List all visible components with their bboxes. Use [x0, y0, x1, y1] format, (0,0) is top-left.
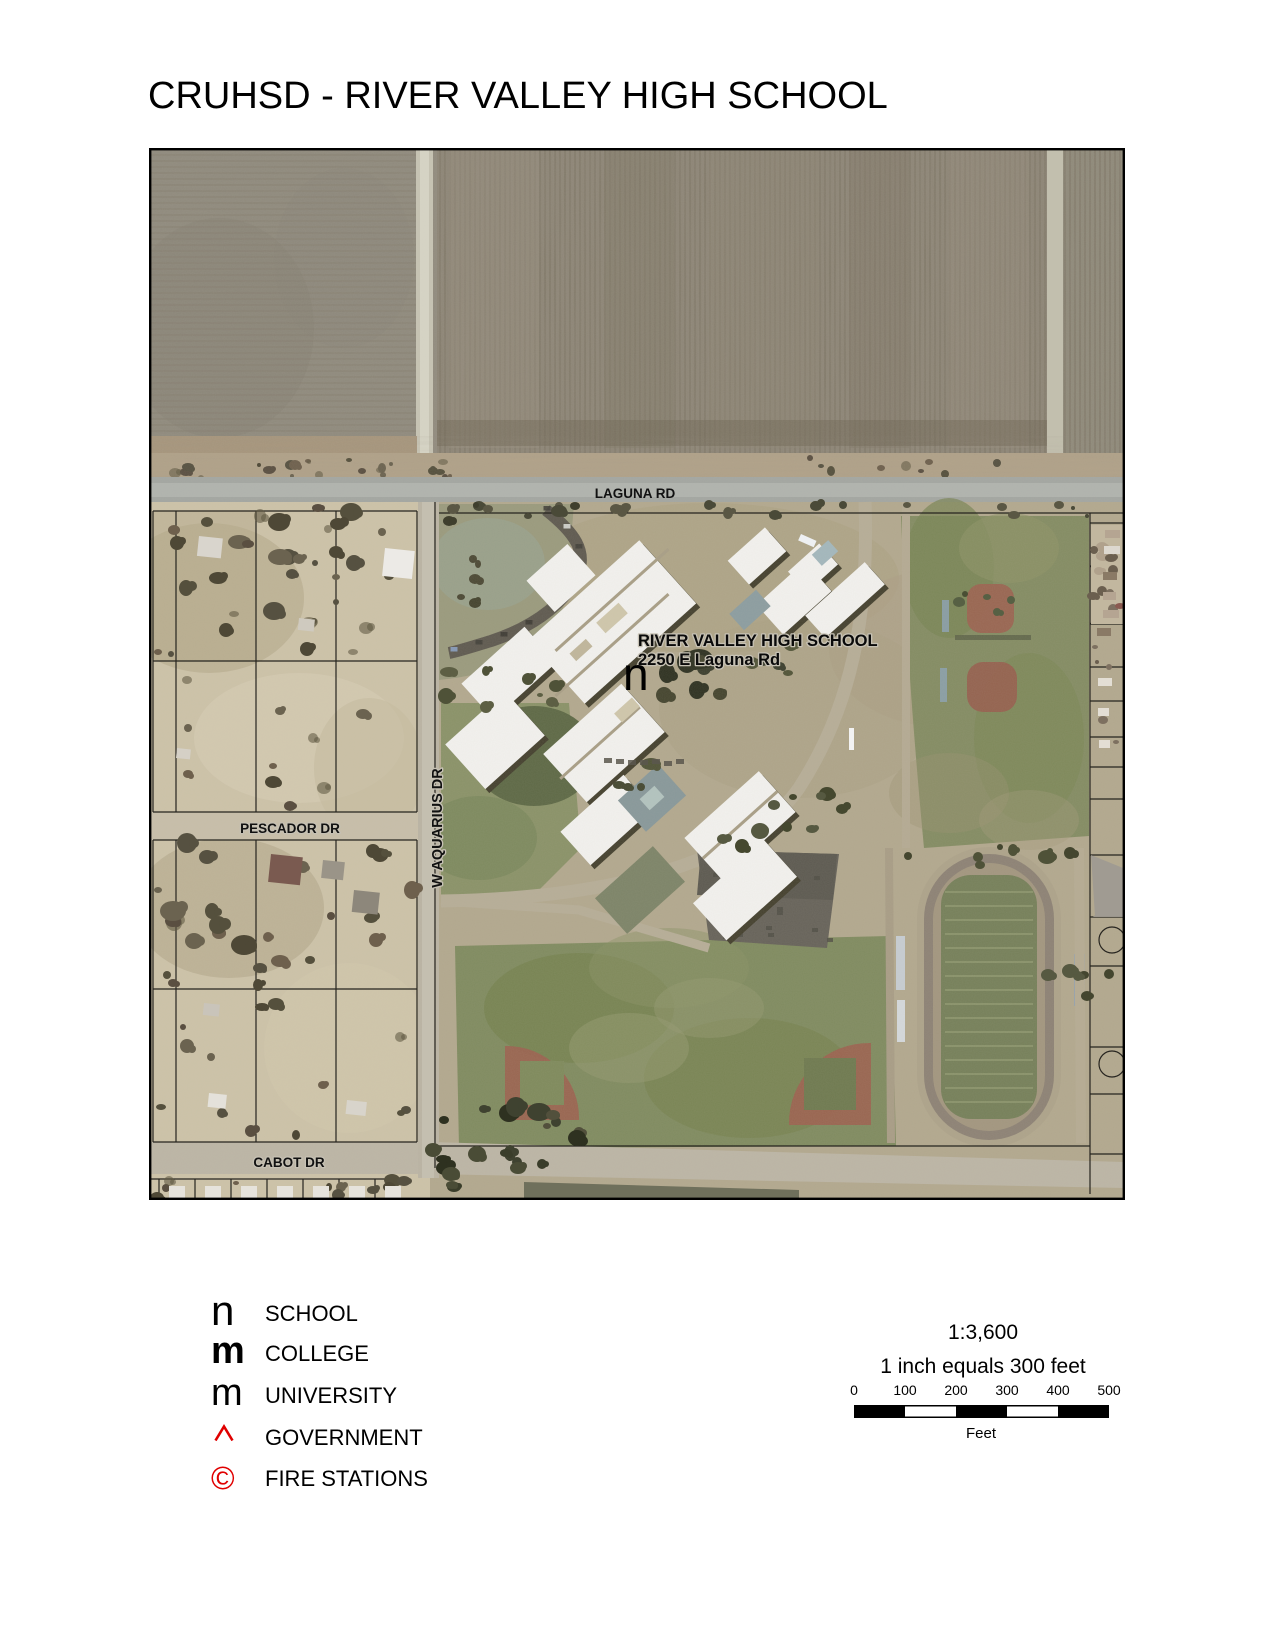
svg-text:Feet: Feet: [966, 1425, 997, 1442]
svg-text:W AQUARIUS DR: W AQUARIUS DR: [430, 768, 446, 888]
svg-text:0: 0: [850, 1382, 858, 1398]
svg-text:2250 E Laguna Rd: 2250 E Laguna Rd: [638, 651, 780, 669]
svg-text:LAGUNA RD: LAGUNA RD: [595, 486, 676, 501]
svg-text:n: n: [623, 648, 649, 700]
svg-text:PESCADOR DR: PESCADOR DR: [240, 821, 340, 836]
svg-text:RIVER VALLEY HIGH SCHOOL: RIVER VALLEY HIGH SCHOOL: [638, 632, 878, 650]
svg-text:200: 200: [944, 1382, 968, 1398]
svg-text:400: 400: [1046, 1382, 1070, 1398]
svg-text:500: 500: [1097, 1382, 1121, 1398]
svg-text:CABOT DR: CABOT DR: [253, 1155, 324, 1170]
svg-text:100: 100: [893, 1382, 917, 1398]
svg-text:300: 300: [995, 1382, 1019, 1398]
